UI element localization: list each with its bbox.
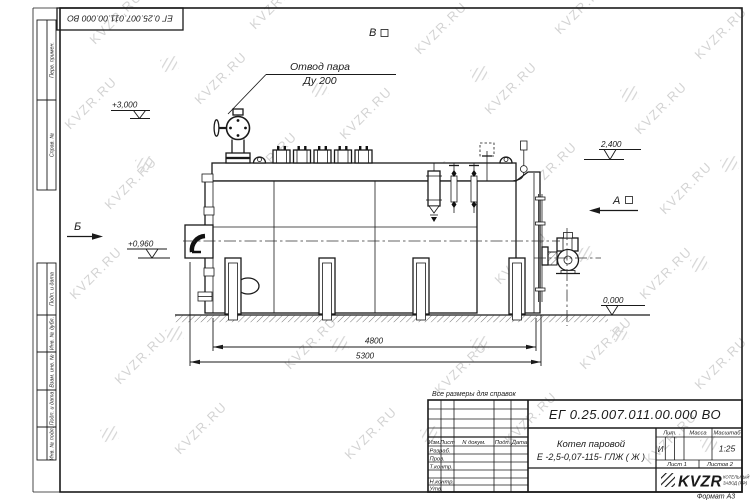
support-leg	[225, 258, 241, 320]
view-arrow-b: Б	[67, 221, 103, 240]
boiler-body	[205, 163, 540, 313]
reference-note: Все размеры для справок	[432, 390, 517, 398]
watermark-text: KVZR.RU	[637, 244, 695, 302]
dimension-value: 4800	[365, 337, 384, 346]
margin-label: Инв. № подл.	[50, 427, 56, 460]
handwheel	[214, 120, 219, 136]
company-line1: КОТЕЛЬНЫЙ	[723, 475, 749, 480]
company-cell: KVZR КОТЕЛЬНЫЙ ЗАВОД (РФ)	[661, 473, 749, 491]
product-name-line1: Котел паровой	[557, 439, 626, 450]
watermark-logo	[690, 256, 709, 273]
col-header: Лист	[439, 440, 455, 446]
sheet-number: Лист 1	[666, 462, 687, 468]
watermark-logo	[700, 436, 719, 453]
company-logo-text: KVZR	[678, 474, 723, 491]
pump-volute	[558, 250, 579, 271]
watermark-text: KVZR.RU	[482, 59, 540, 117]
level-mark-0960: +0,960	[127, 240, 170, 259]
sign-row: Н.контр.	[430, 480, 455, 486]
format-label: Формат А3	[697, 494, 735, 500]
watermark-text: KVZR.RU	[67, 244, 125, 302]
level-value: 0,000	[603, 296, 624, 305]
support-leg	[413, 258, 429, 320]
watermark-text: KVZR.RU	[112, 329, 170, 387]
watermark-text: KVZR.RU	[247, 0, 305, 32]
safety-valve-hatch	[314, 146, 331, 163]
level-mark-2400: 2,400	[584, 140, 641, 160]
support-leg	[509, 258, 525, 320]
dimension-value: 5300	[356, 352, 375, 361]
margin-label: Справ. №	[50, 133, 56, 158]
burner	[185, 225, 213, 258]
watermark-text: KVZR.RU	[632, 79, 690, 137]
leader-line	[228, 75, 266, 115]
watermark-text: KVZR.RU	[692, 334, 750, 392]
watermark-text: KVZR.RU	[577, 314, 635, 372]
lit-value: И	[658, 445, 664, 454]
lit-header: Лит.	[662, 431, 677, 437]
view-letter: А	[612, 195, 620, 207]
view-letter: Б	[74, 221, 81, 233]
steam-label-line1: Отвод пара	[290, 61, 350, 73]
margin-label: Подп. и дата	[50, 272, 56, 306]
watermark-logo	[620, 86, 639, 103]
scale-header: Масштаб	[713, 431, 741, 437]
sign-row: Пров.	[430, 457, 445, 463]
title-block: Изм. Лист N докум. Подп. Дата Разраб. Пр…	[428, 400, 749, 500]
sheets-total: Листов 2	[706, 462, 734, 468]
watermark-text: KVZR.RU	[337, 84, 395, 142]
col-header: Дата	[511, 440, 528, 446]
scale-value: 1:25	[719, 444, 736, 454]
safety-valve-hatch	[294, 146, 311, 163]
level-value: +3,000	[112, 101, 138, 110]
safety-valve-hatch	[335, 146, 352, 163]
product-name-line2: Е -2,5-0,07-115- ГЛЖ ( Ж )	[537, 452, 645, 462]
margin-label: Перв. примен.	[50, 42, 56, 78]
margin-label: Инв. № дубл.	[50, 317, 56, 350]
watermark-text: KVZR.RU	[552, 0, 610, 37]
watermark-logo	[160, 56, 179, 73]
sign-row: Разраб.	[430, 449, 451, 455]
steam-label-line2: Ду 200	[302, 75, 336, 87]
watermark-logo	[720, 156, 739, 173]
watermark-logo	[100, 426, 119, 443]
ground-hatch	[175, 315, 650, 322]
watermark-text: KVZR.RU	[172, 399, 230, 457]
company-logo-mark	[661, 473, 675, 487]
margin-label: Взам. инв. №	[50, 354, 56, 388]
mass-header: Масса	[689, 431, 707, 437]
level-value: +0,960	[128, 240, 154, 249]
corner-doc-number: ЕГ 0.25.007.011.00.000 ВО	[67, 14, 173, 24]
col-header: Подп.	[495, 440, 510, 446]
level-value: 2,400	[600, 140, 622, 149]
watermark-logo	[470, 66, 489, 83]
col-header: N докум.	[462, 440, 485, 446]
doc-number: ЕГ 0.25.007.011.00.000 ВО	[549, 407, 721, 422]
view-arrow-a: А	[589, 195, 638, 214]
sign-row: Утв.	[429, 487, 443, 493]
view-letter: В	[369, 27, 376, 39]
company-line2: ЗАВОД (РФ)	[723, 481, 748, 486]
col-header: Изм.	[428, 440, 440, 446]
watermark-text: KVZR.RU	[692, 4, 750, 62]
sign-row: Т.контр.	[430, 465, 453, 471]
support-leg	[319, 258, 335, 320]
engineering-drawing: KVZR.RUKVZR.RUKVZR.RUKVZR.RUKVZR.RUKVZR.…	[0, 0, 750, 500]
watermark-logo	[330, 336, 349, 353]
level-mark-0000: 0,000	[601, 296, 645, 315]
level-mark-3000: +3,000	[111, 101, 150, 119]
margin-column-labels: Перв. примен. Справ. № Подп. и дата Инв.…	[50, 42, 56, 460]
steam-valve	[214, 109, 250, 163]
safety-valve-hatch	[355, 146, 372, 163]
watermark-text: KVZR.RU	[657, 159, 715, 217]
drawing-sheet: KVZR.RUKVZR.RUKVZR.RUKVZR.RUKVZR.RUKVZR.…	[0, 0, 750, 500]
margin-label: Подп. и дата	[50, 392, 56, 426]
watermark-text: KVZR.RU	[192, 49, 250, 107]
view-arrow-v: В	[369, 27, 388, 39]
watermark-logo	[165, 326, 184, 343]
watermark-text: KVZR.RU	[342, 404, 400, 462]
